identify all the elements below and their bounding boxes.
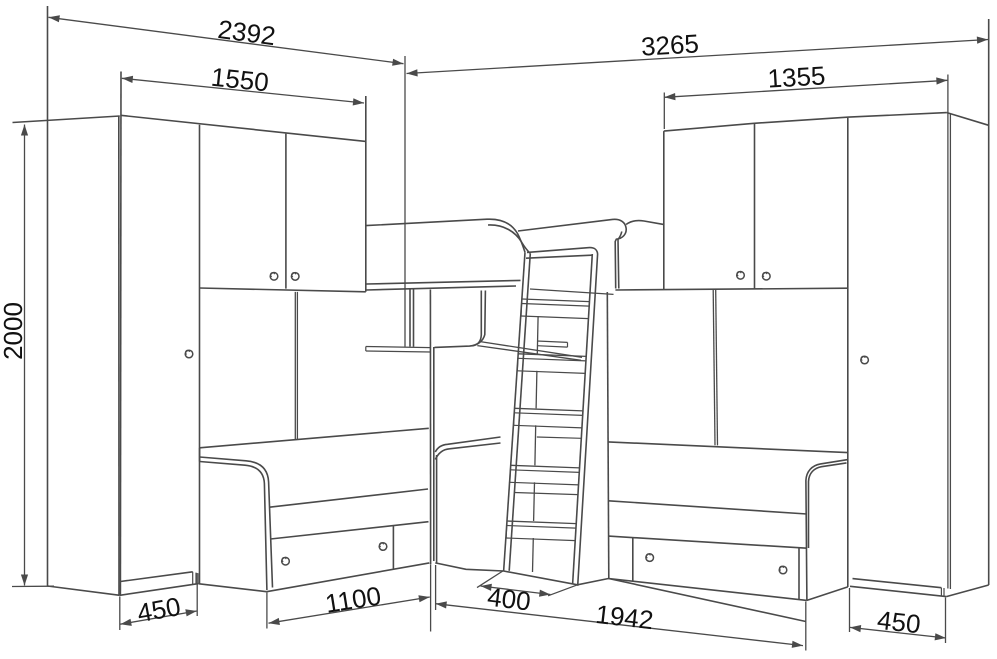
svg-text:2000: 2000 xyxy=(0,302,28,360)
svg-text:450: 450 xyxy=(876,605,922,640)
svg-text:1550: 1550 xyxy=(210,62,271,98)
svg-text:3265: 3265 xyxy=(640,28,699,61)
svg-text:1355: 1355 xyxy=(767,60,826,93)
svg-text:400: 400 xyxy=(486,582,533,617)
